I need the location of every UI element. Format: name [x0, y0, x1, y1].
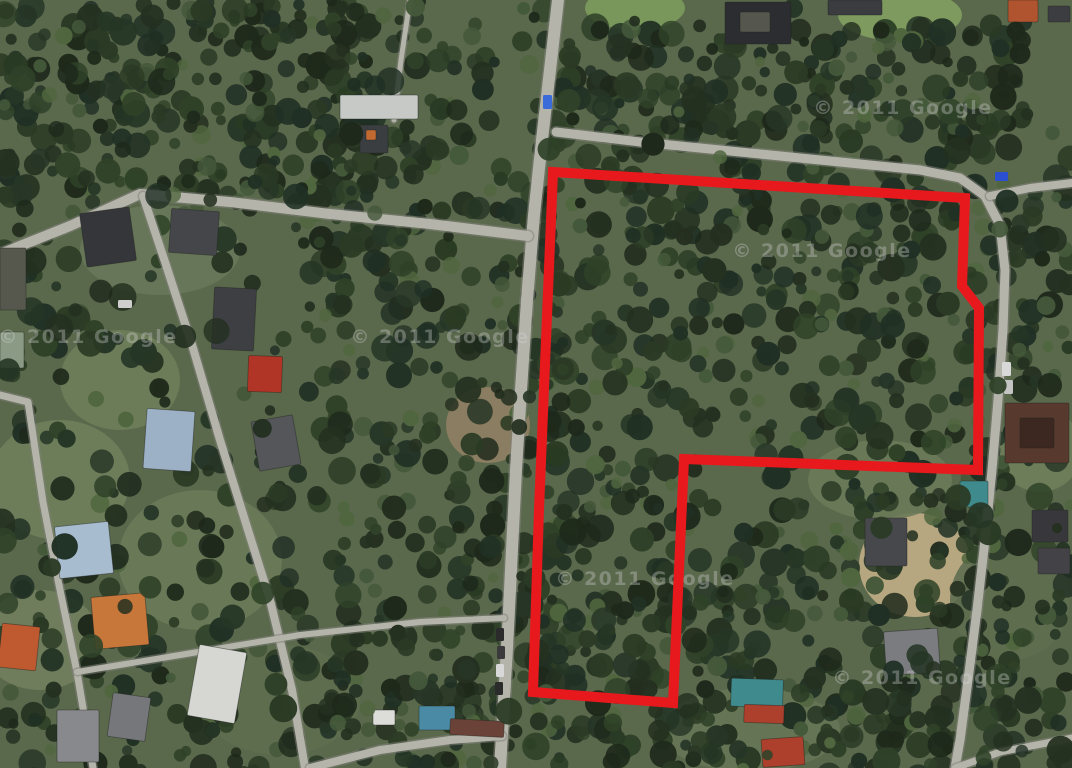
tree-canopy — [932, 602, 948, 618]
vehicle — [496, 628, 504, 641]
tree-canopy — [220, 605, 245, 630]
tree-canopy — [887, 292, 900, 305]
tree-canopy — [349, 632, 365, 648]
tree-canopy — [576, 144, 602, 170]
tree-canopy — [463, 576, 479, 592]
tree-canopy — [385, 175, 399, 189]
tree-canopy — [341, 728, 353, 740]
tree-canopy — [174, 749, 187, 762]
tree-canopy — [43, 558, 61, 576]
tree-canopy — [996, 479, 1007, 490]
tree-canopy — [936, 292, 960, 316]
tree-canopy — [422, 412, 438, 428]
tree-canopy — [627, 414, 653, 440]
tree-canopy — [494, 172, 508, 186]
tree-canopy — [839, 129, 863, 153]
tree-canopy — [710, 223, 733, 246]
tree-canopy — [614, 72, 640, 98]
tree-canopy — [551, 715, 565, 729]
tree-canopy — [452, 521, 464, 533]
tree-canopy — [692, 666, 703, 677]
tree-canopy — [821, 205, 841, 225]
tree-canopy — [1012, 343, 1026, 357]
tree-canopy — [707, 656, 727, 676]
vehicle — [496, 664, 504, 677]
tree-canopy — [139, 576, 162, 599]
tree-canopy — [35, 590, 46, 601]
watermark-text: © 2011 Google — [0, 326, 178, 348]
tree-canopy — [992, 39, 1010, 57]
tree-canopy — [298, 237, 310, 249]
tree-canopy — [807, 606, 823, 622]
tree-canopy — [702, 258, 726, 282]
tree-canopy — [794, 721, 809, 736]
tree-canopy — [625, 489, 640, 504]
tree-canopy — [474, 684, 486, 696]
tree-canopy — [172, 531, 188, 547]
tree-canopy — [784, 60, 808, 84]
tree-canopy — [766, 289, 787, 310]
tree-canopy — [673, 326, 688, 341]
tree-canopy — [549, 645, 569, 665]
tree-canopy — [744, 646, 757, 659]
tree-canopy — [743, 608, 760, 625]
tree-canopy — [811, 266, 821, 276]
tree-canopy — [382, 496, 406, 520]
tree-canopy — [395, 234, 407, 246]
tree-canopy — [346, 3, 365, 22]
tree-canopy — [944, 138, 971, 165]
tree-canopy — [591, 21, 609, 39]
tree-canopy — [33, 612, 45, 624]
tree-canopy — [6, 729, 20, 743]
tree-canopy — [756, 342, 780, 366]
tree-canopy — [664, 76, 679, 91]
tree-canopy — [674, 269, 684, 279]
tree-canopy — [968, 502, 994, 528]
tree-canopy — [751, 263, 761, 273]
tree-canopy — [671, 341, 692, 362]
tree-canopy — [441, 752, 456, 767]
building — [107, 693, 151, 742]
tree-canopy — [594, 631, 613, 650]
tree-canopy — [924, 507, 942, 525]
building — [744, 704, 785, 723]
tree-canopy — [363, 249, 386, 272]
tree-canopy — [557, 89, 581, 113]
tree-canopy — [840, 542, 859, 561]
tree-canopy — [648, 720, 670, 742]
tree-canopy — [213, 23, 229, 39]
tree-canopy — [948, 314, 960, 326]
building — [57, 710, 99, 762]
tree-canopy — [310, 328, 326, 344]
tree-canopy — [307, 486, 326, 505]
tree-canopy — [215, 169, 226, 180]
tree-canopy — [962, 26, 983, 47]
tree-canopy — [283, 184, 309, 210]
tree-canopy — [41, 648, 64, 671]
tree-canopy — [866, 576, 884, 594]
tree-canopy — [199, 534, 223, 558]
tree-canopy — [467, 197, 490, 220]
tree-canopy — [697, 56, 712, 71]
tree-canopy — [871, 376, 882, 387]
tree-canopy — [403, 410, 419, 426]
tree-canopy — [100, 41, 118, 59]
tree-canopy — [58, 430, 76, 448]
tree-canopy — [272, 536, 295, 559]
tree-canopy — [450, 471, 467, 488]
tree-canopy — [630, 527, 654, 551]
tree-canopy — [53, 368, 70, 385]
tree-canopy — [578, 630, 596, 648]
tree-canopy — [1052, 648, 1069, 665]
tree-canopy — [311, 161, 329, 179]
tree-canopy — [706, 43, 718, 55]
tree-canopy — [573, 219, 588, 234]
tree-canopy — [416, 28, 432, 44]
tree-canopy — [870, 517, 892, 539]
tree-canopy — [512, 31, 532, 51]
tree-canopy — [955, 124, 969, 138]
tree-canopy — [575, 198, 586, 209]
tree-canopy — [875, 494, 890, 509]
tree-canopy — [812, 39, 834, 61]
tree-canopy — [450, 123, 473, 146]
tree-canopy — [449, 146, 468, 165]
tree-canopy — [159, 397, 170, 408]
tree-canopy — [226, 84, 247, 105]
tree-canopy — [122, 745, 132, 755]
tree-canopy — [796, 283, 807, 294]
tree-canopy — [847, 706, 866, 725]
tree-canopy — [909, 711, 926, 728]
tree-canopy — [807, 706, 825, 724]
tree-canopy — [1013, 628, 1032, 647]
tree-canopy — [605, 324, 616, 335]
tree-canopy — [552, 392, 571, 411]
tree-canopy — [55, 27, 73, 45]
tree-canopy — [370, 524, 381, 535]
tree-canopy — [766, 105, 793, 132]
tree-canopy — [947, 418, 961, 432]
tree-canopy — [381, 422, 397, 438]
tree-canopy — [774, 267, 795, 288]
tree-canopy — [360, 189, 373, 202]
tree-canopy — [795, 576, 819, 600]
tree-canopy — [347, 78, 361, 92]
tree-canopy — [868, 328, 878, 338]
tree-canopy — [566, 112, 579, 125]
tree-canopy — [486, 501, 503, 518]
tree-canopy — [457, 660, 477, 680]
tree-canopy — [556, 504, 572, 520]
tree-canopy — [145, 270, 157, 282]
tree-canopy — [996, 190, 1019, 213]
tree-canopy — [346, 186, 356, 196]
tree-canopy — [831, 31, 848, 48]
tree-canopy — [87, 51, 101, 65]
tree-canopy — [1005, 529, 1032, 556]
tree-canopy — [339, 122, 363, 146]
tree-canopy — [889, 444, 906, 461]
tree-canopy — [791, 684, 810, 703]
building — [247, 355, 282, 392]
tree-canopy — [716, 336, 733, 353]
tree-canopy — [204, 318, 230, 344]
tree-canopy — [517, 671, 530, 684]
tree-canopy — [1035, 600, 1050, 615]
tree-canopy — [463, 27, 481, 45]
tree-canopy — [511, 419, 527, 435]
tree-canopy — [863, 714, 883, 734]
tree-canopy — [115, 142, 131, 158]
tree-canopy — [647, 196, 675, 224]
tree-canopy — [804, 667, 826, 689]
tree-canopy — [206, 724, 220, 738]
tree-canopy — [992, 221, 1009, 238]
tree-canopy — [187, 111, 200, 124]
tree-canopy — [297, 81, 309, 93]
tree-canopy — [943, 57, 953, 67]
tree-canopy — [137, 34, 159, 56]
tree-canopy — [952, 71, 968, 87]
building — [1008, 0, 1038, 22]
tree-canopy — [802, 635, 814, 647]
tree-canopy — [907, 339, 927, 359]
tree-canopy — [660, 115, 679, 134]
tree-canopy — [838, 284, 854, 300]
tree-canopy — [584, 501, 596, 513]
tree-canopy — [429, 649, 441, 661]
tree-canopy — [517, 2, 530, 15]
tree-canopy — [1041, 227, 1066, 252]
tree-canopy — [928, 18, 956, 46]
tree-canopy — [752, 394, 765, 407]
tree-canopy — [624, 272, 638, 286]
tree-canopy — [945, 485, 971, 511]
tree-canopy — [729, 740, 747, 758]
tree-canopy — [907, 530, 918, 541]
tree-canopy — [883, 73, 894, 84]
tree-canopy — [56, 246, 82, 272]
tree-canopy — [756, 286, 766, 296]
tree-canopy — [386, 362, 412, 388]
tree-canopy — [508, 171, 529, 192]
tree-canopy — [1039, 687, 1066, 714]
tree-canopy — [407, 52, 424, 69]
tree-canopy — [593, 244, 604, 255]
tree-canopy — [907, 644, 929, 666]
tree-canopy — [368, 584, 382, 598]
tree-canopy — [263, 10, 281, 28]
tree-canopy — [724, 159, 740, 175]
tree-canopy — [335, 554, 346, 565]
tree-canopy — [849, 478, 861, 490]
tree-canopy — [198, 157, 217, 176]
tree-canopy — [291, 222, 301, 232]
tree-canopy — [276, 331, 292, 347]
building — [1038, 548, 1070, 574]
tree-canopy — [397, 638, 415, 656]
tree-canopy — [338, 501, 350, 513]
tree-canopy — [865, 64, 881, 80]
tree-canopy — [461, 267, 480, 286]
tree-canopy — [886, 119, 903, 136]
tree-canopy — [611, 358, 622, 369]
tree-canopy — [734, 523, 753, 542]
tree-canopy — [604, 714, 622, 732]
tree-canopy — [758, 224, 770, 236]
tree-canopy — [890, 204, 909, 223]
tree-canopy — [291, 607, 306, 622]
tree-canopy — [902, 33, 921, 52]
tree-canopy — [419, 427, 436, 444]
tree-canopy — [211, 102, 225, 116]
tree-canopy — [118, 599, 133, 614]
tree-canopy — [815, 318, 829, 332]
tree-canopy — [261, 33, 278, 50]
tree-canopy — [949, 392, 963, 406]
tree-canopy — [1037, 296, 1056, 315]
tree-canopy — [665, 479, 677, 491]
tree-canopy — [972, 141, 996, 165]
tree-canopy — [789, 19, 812, 42]
building — [340, 95, 418, 119]
tree-canopy — [693, 417, 714, 438]
tree-canopy — [817, 590, 828, 601]
tree-canopy — [643, 341, 663, 361]
tree-canopy — [575, 548, 592, 565]
tree-canopy — [841, 568, 861, 588]
tree-canopy — [1012, 31, 1031, 50]
tree-canopy — [46, 682, 62, 698]
tree-canopy — [615, 461, 631, 477]
tree-canopy — [445, 398, 459, 412]
tree-canopy — [678, 46, 694, 62]
vehicle — [1002, 362, 1011, 376]
tree-canopy — [705, 122, 718, 135]
tree-canopy — [611, 604, 623, 616]
tree-canopy — [691, 731, 710, 750]
tree-canopy — [840, 724, 864, 748]
tree-canopy — [336, 0, 349, 13]
tree-canopy — [367, 206, 382, 221]
tree-canopy — [827, 269, 841, 283]
building — [1020, 418, 1054, 448]
tree-canopy — [149, 378, 169, 398]
tree-canopy — [723, 313, 744, 334]
tree-canopy — [327, 143, 342, 158]
tree-canopy — [72, 104, 86, 118]
tree-canopy — [742, 76, 756, 90]
tree-canopy — [787, 498, 809, 520]
tree-canopy — [404, 722, 419, 737]
tree-canopy — [577, 524, 601, 548]
tree-canopy — [394, 719, 405, 730]
tree-canopy — [896, 85, 907, 96]
tree-canopy — [611, 477, 622, 488]
tree-canopy — [755, 85, 767, 97]
tree-canopy — [191, 0, 213, 22]
tree-canopy — [192, 73, 204, 85]
tree-canopy — [791, 104, 802, 115]
tree-canopy — [798, 121, 809, 132]
tree-canopy — [856, 203, 883, 230]
tree-canopy — [1038, 373, 1062, 397]
tree-canopy — [332, 693, 357, 718]
satellite-map-canvas: © 2011 Google© 2011 Google© 2011 Google©… — [0, 0, 1072, 768]
tree-canopy — [417, 199, 433, 215]
tree-canopy — [118, 412, 134, 428]
tree-canopy — [1009, 74, 1020, 85]
tree-canopy — [305, 301, 315, 311]
tree-canopy — [1022, 206, 1042, 226]
tree-canopy — [848, 404, 876, 432]
tree-canopy — [409, 439, 422, 452]
tree-canopy — [923, 276, 941, 294]
tree-canopy — [251, 582, 274, 605]
tree-canopy — [461, 433, 484, 456]
tree-canopy — [928, 732, 954, 758]
tree-canopy — [808, 743, 821, 756]
tree-canopy — [28, 33, 46, 51]
tree-canopy — [1050, 715, 1066, 731]
building — [1048, 6, 1070, 22]
tree-canopy — [647, 366, 660, 379]
tree-canopy — [433, 542, 446, 555]
tree-canopy — [609, 730, 625, 746]
tree-canopy — [678, 250, 697, 269]
tree-canopy — [700, 712, 715, 727]
tree-canopy — [166, 673, 176, 683]
tree-canopy — [905, 403, 932, 430]
tree-canopy — [479, 536, 501, 558]
tree-canopy — [693, 20, 706, 33]
tree-canopy — [269, 695, 297, 723]
tree-canopy — [1045, 126, 1059, 140]
tree-canopy — [463, 600, 480, 617]
tree-canopy — [67, 129, 92, 154]
tree-canopy — [815, 84, 827, 96]
tree-canopy — [219, 525, 233, 539]
tree-canopy — [544, 441, 569, 466]
tree-canopy — [919, 233, 946, 260]
tree-canopy — [760, 549, 788, 577]
tree-canopy — [145, 183, 171, 209]
tree-canopy — [810, 120, 827, 137]
tree-canopy — [782, 228, 792, 238]
tree-canopy — [144, 505, 159, 520]
tree-canopy — [328, 457, 356, 485]
tree-canopy — [2, 684, 18, 700]
tree-canopy — [648, 457, 659, 468]
tree-canopy — [793, 313, 819, 339]
tree-canopy — [344, 159, 358, 173]
tree-canopy — [584, 259, 611, 286]
tree-canopy — [418, 585, 437, 604]
tree-canopy — [557, 364, 569, 376]
tree-canopy — [575, 330, 589, 344]
tree-canopy — [432, 202, 451, 221]
tree-canopy — [1043, 341, 1054, 352]
tree-canopy — [42, 87, 57, 102]
tree-canopy — [488, 588, 503, 603]
tree-canopy — [673, 106, 684, 117]
tree-canopy — [496, 203, 514, 221]
tree-canopy — [268, 483, 287, 502]
